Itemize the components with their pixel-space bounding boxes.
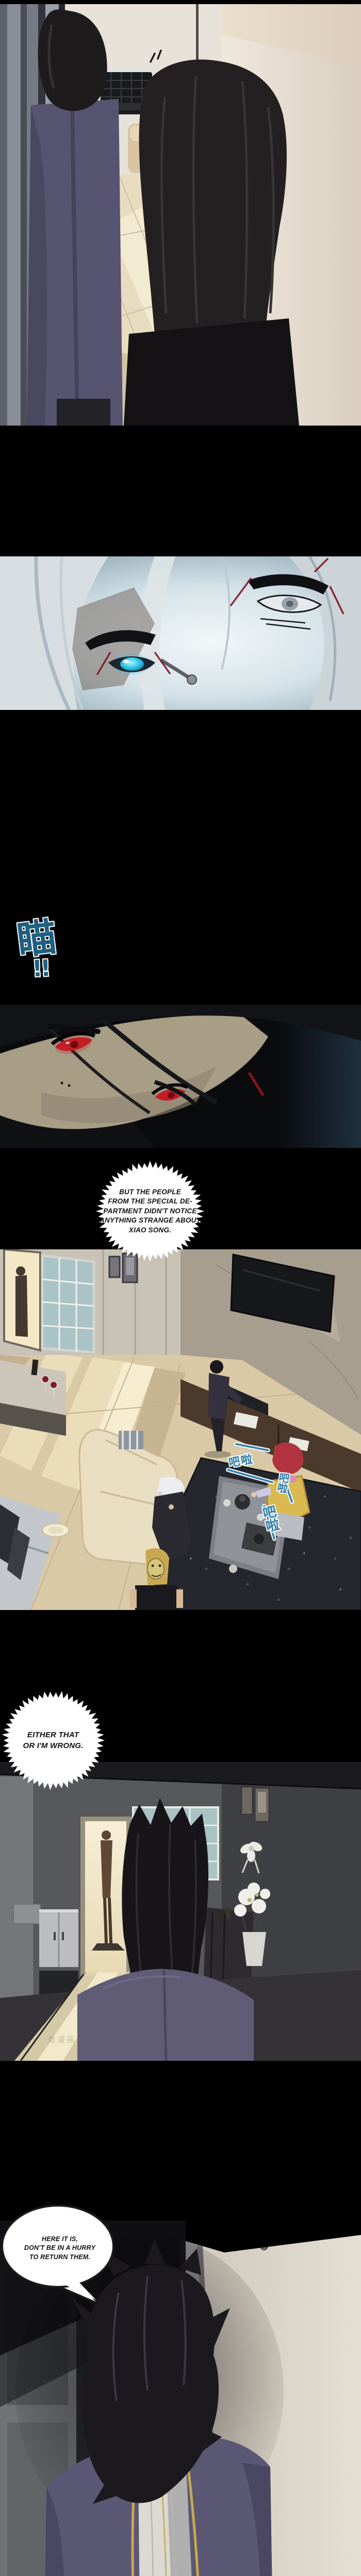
- dialogue-line: PARTMENT DIDN'T NOTICE: [103, 1207, 196, 1216]
- kitchen-island-wine: [0, 1360, 66, 1436]
- dialogue-line: OR I'M WRONG.: [23, 1740, 84, 1751]
- dialogue-line: BUT THE PEOPLE: [119, 1188, 181, 1197]
- sfx-glance-exclamation: !!: [15, 957, 65, 981]
- comic-page: 瞄 !!: [0, 0, 361, 2576]
- narration-bubble-either-that: EITHER THAT OR I'M WRONG.: [1, 1690, 105, 1791]
- panel-doorway-office: [0, 4, 361, 426]
- dialogue-line: XIAO SONG.: [129, 1226, 171, 1235]
- dialogue-line: HERE IT IS,: [42, 2235, 78, 2244]
- foreground-right-figure: [124, 59, 299, 426]
- dialogue-line: ANYTHING STRANGE ABOUT: [100, 1216, 201, 1226]
- panel-living-room-overhead: [0, 1249, 361, 1610]
- narration-bubble-special-department: BUT THE PEOPLE FROM THE SPECIAL DE- PART…: [95, 1160, 205, 1262]
- panel-dim-apartment-doorway: [0, 1762, 361, 2061]
- speech-bubble-here-it-is: HERE IT IS, DON'T BE IN A HURRY TO RETUR…: [0, 2204, 120, 2307]
- panel-cyan-eye-closeup: [0, 556, 361, 710]
- dialogue-line: DON'T BE IN A HURRY: [24, 2244, 95, 2253]
- white-cabinet: [39, 1909, 78, 1998]
- dialogue-line: TO RETURN THEM.: [29, 2253, 90, 2262]
- panel-red-eyes-closeup: [0, 1005, 361, 1148]
- sfx-rustle-2: 吧啦: [274, 1471, 292, 1494]
- narration-text: EITHER THAT OR I'M WRONG.: [1, 1690, 105, 1791]
- dialogue-line: FROM THE SPECIAL DE-: [108, 1197, 192, 1207]
- entry-door-lit: [4, 1249, 40, 1350]
- narration-text: BUT THE PEOPLE FROM THE SPECIAL DE- PART…: [95, 1160, 205, 1262]
- site-watermark: 看漫画: [48, 2034, 76, 2045]
- speech-text: HERE IT IS, DON'T BE IN A HURRY TO RETUR…: [0, 2204, 120, 2307]
- dialogue-line: EITHER THAT: [27, 1730, 79, 1740]
- sfx-glance: 瞄 !!: [10, 918, 66, 983]
- window-grid: [42, 1256, 94, 1352]
